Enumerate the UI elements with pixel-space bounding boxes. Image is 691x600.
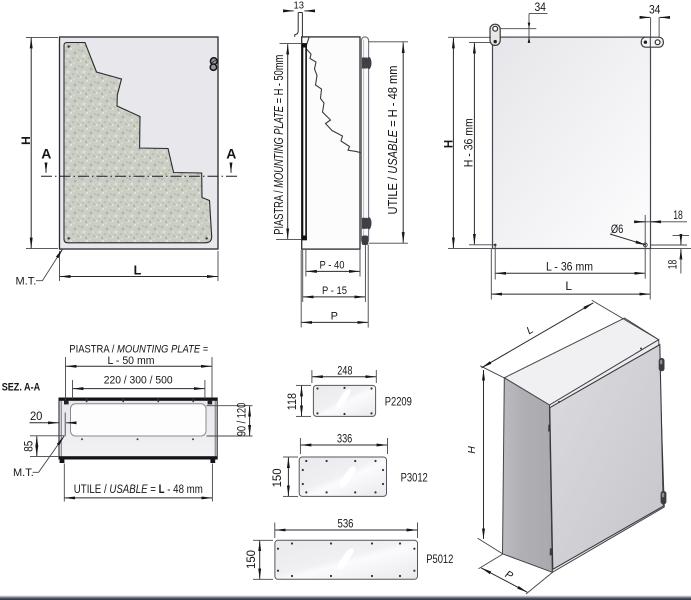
svg-text:13: 13 <box>294 0 305 12</box>
svg-text:248: 248 <box>337 365 352 377</box>
svg-text:H - 36 mm: H - 36 mm <box>462 118 476 167</box>
svg-text:P5012: P5012 <box>426 554 453 566</box>
svg-text:150: 150 <box>246 550 258 569</box>
svg-text:118: 118 <box>287 393 299 410</box>
svg-text:18: 18 <box>668 260 680 270</box>
svg-text:SEZ. A-A: SEZ. A-A <box>2 382 41 394</box>
svg-text:85: 85 <box>22 441 36 452</box>
svg-text:H: H <box>443 140 455 148</box>
svg-text:PIASTRA / MOUNTING PLATE = H -: PIASTRA / MOUNTING PLATE = H - 50mm <box>271 55 286 235</box>
svg-text:A: A <box>41 146 51 162</box>
svg-text:H: H <box>466 446 478 454</box>
svg-text:90 / 120: 90 / 120 <box>236 403 248 437</box>
svg-text:Ø6: Ø6 <box>611 222 624 236</box>
svg-text:P2209: P2209 <box>385 397 412 409</box>
svg-text:P: P <box>331 311 338 323</box>
svg-text:L: L <box>524 324 535 337</box>
svg-text:34: 34 <box>649 4 661 16</box>
svg-text:UTILE / USABLE = H - 48 mm: UTILE / USABLE = H - 48 mm <box>385 66 400 215</box>
svg-text:A: A <box>226 146 236 162</box>
svg-text:P - 40: P - 40 <box>320 259 345 271</box>
svg-text:UTILE / USABLE = L - 48 mm: UTILE / USABLE = L - 48 mm <box>74 484 203 496</box>
svg-text:18: 18 <box>673 210 683 222</box>
svg-text:PIASTRA / MOUNTING PLATE =: PIASTRA / MOUNTING PLATE = <box>69 344 208 356</box>
svg-text:P3012: P3012 <box>401 472 428 484</box>
svg-text:20: 20 <box>30 411 43 423</box>
svg-text:P - 15: P - 15 <box>322 285 347 297</box>
svg-text:M.T.: M.T. <box>13 467 34 479</box>
svg-text:220 / 300 / 500: 220 / 300 / 500 <box>104 375 173 387</box>
svg-text:536: 536 <box>338 518 354 530</box>
svg-text:L - 50 mm: L - 50 mm <box>108 355 155 367</box>
svg-text:L - 36 mm: L - 36 mm <box>546 261 593 273</box>
svg-text:M.T.: M.T. <box>16 275 37 287</box>
svg-text:L: L <box>565 279 572 293</box>
svg-text:150: 150 <box>272 468 284 487</box>
svg-text:336: 336 <box>337 434 352 446</box>
svg-text:L: L <box>134 263 142 277</box>
svg-text:H: H <box>19 136 33 145</box>
svg-text:34: 34 <box>534 2 546 14</box>
